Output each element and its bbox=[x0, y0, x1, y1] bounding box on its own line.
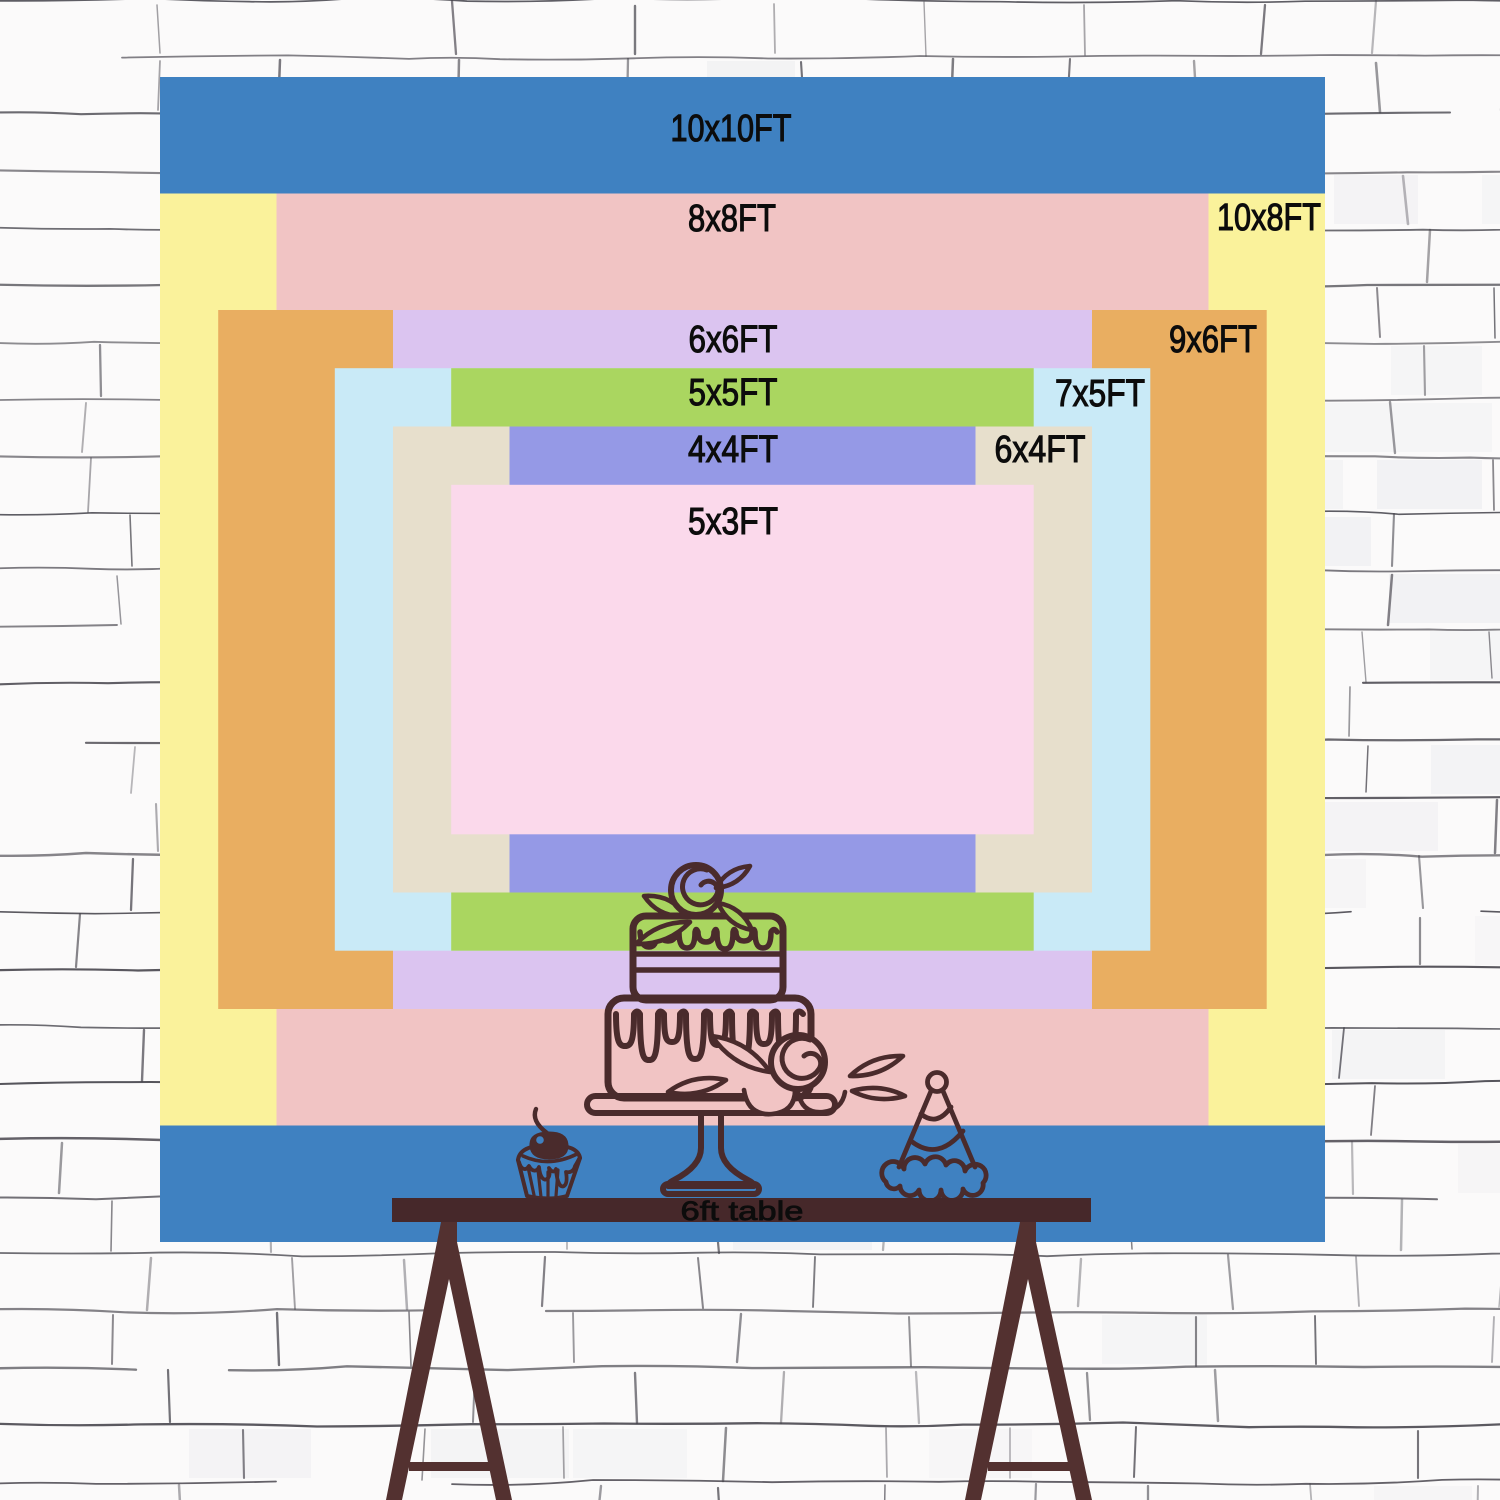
svg-text:10x8FT: 10x8FT bbox=[1217, 197, 1321, 239]
svg-text:7x5FT: 7x5FT bbox=[1055, 373, 1145, 415]
svg-text:9x6FT: 9x6FT bbox=[1169, 319, 1257, 361]
svg-text:8x8FT: 8x8FT bbox=[688, 198, 776, 240]
svg-text:4x4FT: 4x4FT bbox=[688, 429, 778, 471]
svg-text:5x5FT: 5x5FT bbox=[689, 372, 778, 414]
svg-text:5x3FT: 5x3FT bbox=[688, 501, 778, 543]
svg-text:6x4FT: 6x4FT bbox=[995, 429, 1086, 471]
svg-text:6ft table: 6ft table bbox=[681, 1196, 804, 1226]
svg-text:10x10FT: 10x10FT bbox=[671, 108, 792, 150]
svg-text:6x6FT: 6x6FT bbox=[689, 319, 778, 361]
